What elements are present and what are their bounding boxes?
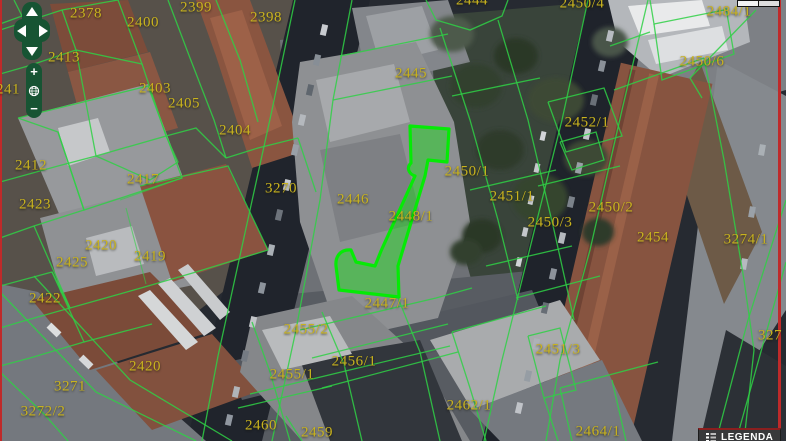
- legend-button-label: LEGENDA: [721, 432, 773, 441]
- pan-left-icon: [17, 25, 26, 37]
- globe-icon: [28, 85, 40, 97]
- pan-right-icon: [39, 25, 48, 37]
- zoom-in-button[interactable]: +: [30, 66, 38, 78]
- aerial-map-image: [0, 0, 786, 441]
- scale-bar-segment: [759, 1, 779, 6]
- scale-bar-segment: [738, 1, 759, 6]
- pan-down-icon: [26, 47, 38, 56]
- zoom-out-button[interactable]: −: [30, 103, 38, 115]
- legend-icon: [706, 433, 716, 441]
- map-border-line-left: [0, 0, 2, 441]
- pan-up-button[interactable]: [25, 4, 39, 18]
- pan-right-button[interactable]: [36, 24, 50, 38]
- map-border-line-right: [778, 0, 781, 441]
- scale-bar: [737, 0, 780, 7]
- zoom-extent-button[interactable]: [28, 85, 40, 97]
- zoom-control: + −: [26, 63, 42, 118]
- map-viewport[interactable]: 237823992400239824442450/42484/124132450…: [0, 0, 786, 441]
- pan-up-icon: [26, 7, 38, 16]
- pan-left-button[interactable]: [14, 24, 28, 38]
- pan-down-button[interactable]: [25, 44, 39, 58]
- legend-button[interactable]: LEGENDA: [698, 428, 781, 441]
- pan-control: [14, 2, 50, 60]
